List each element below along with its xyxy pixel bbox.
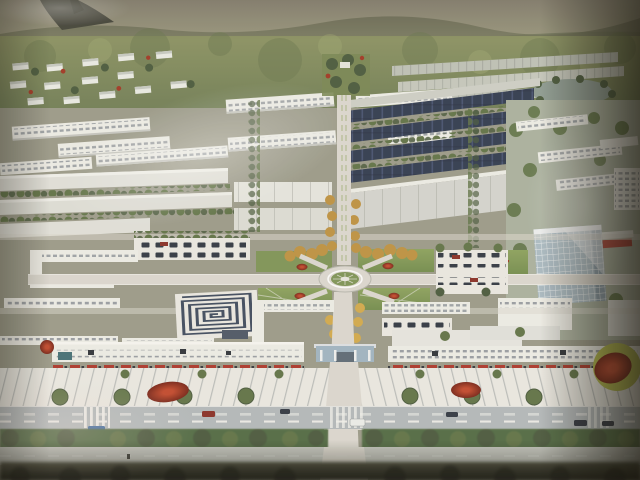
vignette-top — [0, 0, 640, 40]
photo-effects — [0, 0, 640, 480]
vignette-left — [0, 0, 50, 480]
rendering-canvas — [0, 0, 640, 480]
site-plan-photo — [0, 0, 640, 480]
vignette-bottom — [0, 440, 640, 480]
vignette-right — [540, 0, 640, 480]
